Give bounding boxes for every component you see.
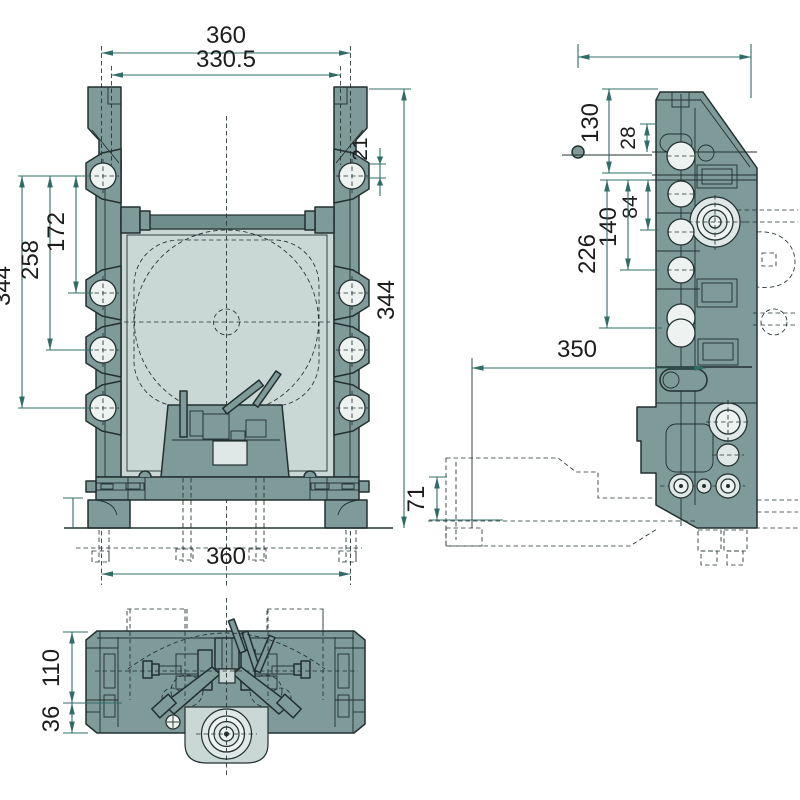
dim-label: 36 (38, 706, 65, 733)
dim-side-vertical-cluster: 130 28 84 140 226 (574, 89, 662, 328)
dim-side-clamp-height: 71 (403, 477, 503, 520)
dim-label: 28 (617, 126, 640, 149)
side-hidden-right (753, 232, 798, 335)
front-foot-reference (63, 498, 83, 528)
dim-front-overall-height: 344 (369, 89, 411, 528)
bottom-center-stem (215, 638, 239, 683)
dim-label: 172 (43, 212, 70, 252)
technical-drawing-canvas: 360 330.5 21 172 258 344 (0, 0, 800, 800)
front-feet (64, 500, 393, 528)
side-body (637, 92, 757, 528)
dim-bottom-boss-depth: 36 (38, 703, 88, 733)
dim-side-top-unlabeled (578, 44, 751, 98)
dim-label: 360 (206, 543, 246, 570)
dim-front-width-top: 360 (102, 22, 351, 165)
dim-label: 110 (38, 649, 65, 687)
bottom-view: 110 36 (38, 598, 365, 777)
front-crossbar (121, 207, 334, 233)
dim-front-hole-spans: 172 258 344 (0, 176, 93, 408)
dim-label: 226 (574, 234, 601, 274)
side-view: 130 28 84 140 226 350 71 (403, 44, 798, 565)
dim-label: 330.5 (196, 46, 256, 73)
dim-front-width-inner: 330.5 (112, 46, 341, 165)
dim-label: 258 (17, 240, 44, 280)
dim-label: 21 (349, 137, 372, 160)
dim-label: 360 (206, 22, 246, 49)
front-right-bolt-head (359, 481, 369, 492)
dim-label: 350 (557, 336, 597, 363)
dim-label: 344 (373, 280, 400, 320)
side-bump-lower (660, 369, 707, 391)
technical-drawing-page: 360 330.5 21 172 258 344 (0, 0, 800, 800)
dim-label: 71 (403, 486, 430, 513)
front-view: 360 330.5 21 172 258 344 (0, 22, 411, 588)
dim-label: 130 (577, 103, 604, 143)
dim-front-width-bottom: 360 (102, 531, 351, 585)
dim-label: 84 (619, 195, 642, 219)
front-left-bolt-head (86, 481, 96, 492)
dim-label: 344 (0, 266, 16, 306)
